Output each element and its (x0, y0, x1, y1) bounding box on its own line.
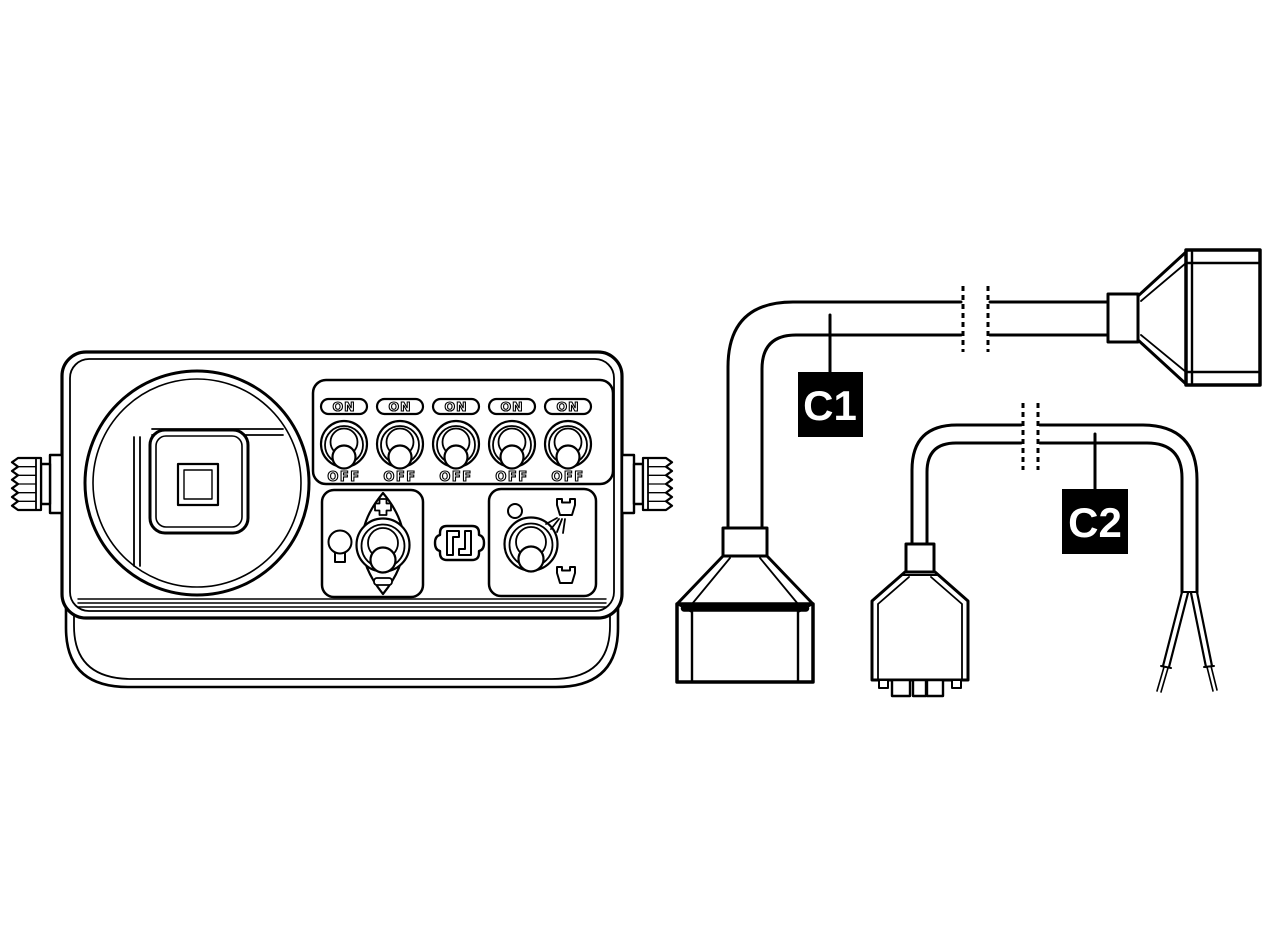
toggle-switch-icon (377, 421, 423, 469)
sprayer-toggle-icon (505, 518, 558, 572)
on-label: ON (556, 399, 579, 414)
left-thumb-knob-icon (12, 455, 62, 513)
c2-label-text: C2 (1068, 499, 1122, 546)
c1-label-text: C1 (803, 382, 857, 429)
off-label: OFF (383, 470, 416, 485)
harness-plug-icon (435, 526, 484, 560)
c1-end-connector (1108, 250, 1260, 385)
cable-c1-tube (728, 302, 1108, 528)
lens-square-bezel (150, 430, 248, 533)
on-label: ON (388, 399, 411, 414)
on-label: ON (500, 399, 523, 414)
control-console: ON OFF ON OFF ON OFF ON OFF (12, 352, 672, 687)
off-label: OFF (327, 470, 360, 485)
c1-label: C1 (798, 315, 863, 437)
toggle-switch-icon (545, 421, 591, 469)
diagram-canvas: ON OFF ON OFF ON OFF ON OFF (0, 0, 1269, 952)
toggle-switch-icon (489, 421, 535, 469)
toggle-switch-icon (433, 421, 479, 469)
lens-assembly (85, 371, 309, 595)
c1-console-connector (677, 528, 813, 682)
right-thumb-knob-icon (622, 455, 672, 513)
cable-break-icon (1023, 403, 1038, 470)
on-label: ON (444, 399, 467, 414)
minus-icon (374, 578, 392, 585)
off-label: OFF (495, 470, 528, 485)
dimmer-toggle-icon (357, 519, 410, 573)
c2-pinned-connector (872, 544, 968, 696)
cable-c2: C2 (872, 403, 1217, 696)
off-label: OFF (439, 470, 472, 485)
c2-label: C2 (1062, 434, 1128, 554)
on-label: ON (332, 399, 355, 414)
toggle-switch-icon (321, 421, 367, 469)
bare-wires-icon (1157, 592, 1217, 692)
off-label: OFF (551, 470, 584, 485)
cable-c2-tube (912, 425, 1197, 592)
cable-break-icon (963, 286, 988, 352)
